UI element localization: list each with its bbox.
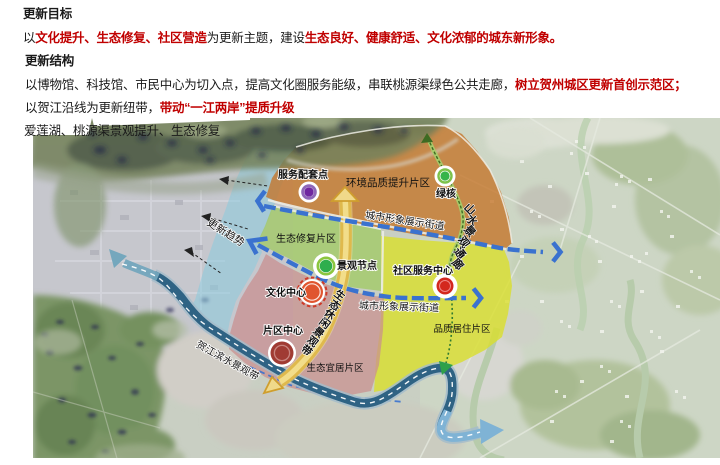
svg-text:生态宜居片区: 生态宜居片区 [306, 362, 364, 374]
svg-text:品质居住片区: 品质居住片区 [433, 323, 491, 335]
svg-text:文化中心: 文化中心 [266, 286, 306, 299]
svg-text:生态修复片区: 生态修复片区 [276, 232, 336, 245]
svg-text:景观节点: 景观节点 [337, 259, 377, 272]
svg-text:绿核: 绿核 [436, 187, 456, 200]
svg-text:片区中心: 片区中心 [263, 324, 303, 337]
svg-text:环境品质提升片区: 环境品质提升片区 [346, 176, 430, 189]
svg-text:社区服务中心: 社区服务中心 [392, 264, 453, 277]
svg-text:服务配套点: 服务配套点 [278, 168, 328, 181]
